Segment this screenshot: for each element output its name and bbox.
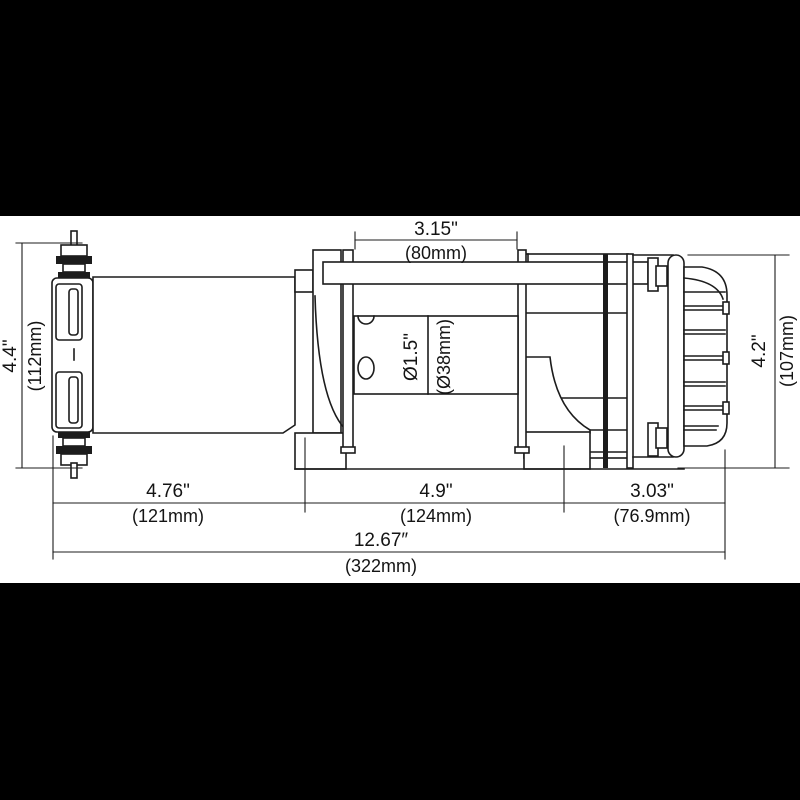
winch-body <box>52 231 729 478</box>
dim-bm-inches: 4.9" <box>419 481 452 502</box>
dim-right-metric: (107mm) <box>777 315 797 387</box>
gearbox-tab <box>295 270 313 292</box>
dim-top-inches: 3.15" <box>414 219 458 240</box>
dimension-top-width: 3.15" (80mm) <box>355 219 517 263</box>
tie-rod <box>323 262 648 284</box>
dim-right-inches: 4.2" <box>749 334 770 367</box>
mounting-plate <box>52 278 93 432</box>
left-foot <box>295 433 346 469</box>
dim-br-inches: 3.03" <box>630 481 674 502</box>
dim-overall-inches: 12.67″ <box>354 530 409 551</box>
winch-drawing-svg: 3.15" (80mm) 4.4" (112mm) Ø1.5" (Ø38mm) … <box>0 0 800 800</box>
letterbox-bottom <box>0 583 800 800</box>
dim-left-metric: (112mm) <box>25 321 45 392</box>
top-bolt-icon <box>56 231 92 278</box>
dim-bm-metric: (124mm) <box>400 506 472 526</box>
dim-bl-inches: 4.76" <box>146 481 190 502</box>
clamp-band <box>603 254 608 468</box>
dim-drum-metric: (Ø38mm) <box>434 319 454 395</box>
dim-overall-metric: (322mm) <box>345 556 417 576</box>
dimension-overall-length: 12.67″ (322mm) <box>53 530 725 576</box>
gearbox-housing <box>93 277 295 433</box>
dim-br-metric: (76.9mm) <box>613 506 690 526</box>
dim-left-inches: 4.4" <box>0 339 21 372</box>
dim-top-metric: (80mm) <box>405 243 467 263</box>
right-foot <box>524 432 590 469</box>
bottom-bolt-icon <box>56 432 92 478</box>
letterbox-top <box>0 0 800 216</box>
cap-mount-plate <box>668 255 684 457</box>
dim-drum-inches: Ø1.5" <box>401 333 422 381</box>
winch-technical-drawing-page: 3.15" (80mm) 4.4" (112mm) Ø1.5" (Ø38mm) … <box>0 0 800 800</box>
dim-bl-metric: (121mm) <box>132 506 204 526</box>
